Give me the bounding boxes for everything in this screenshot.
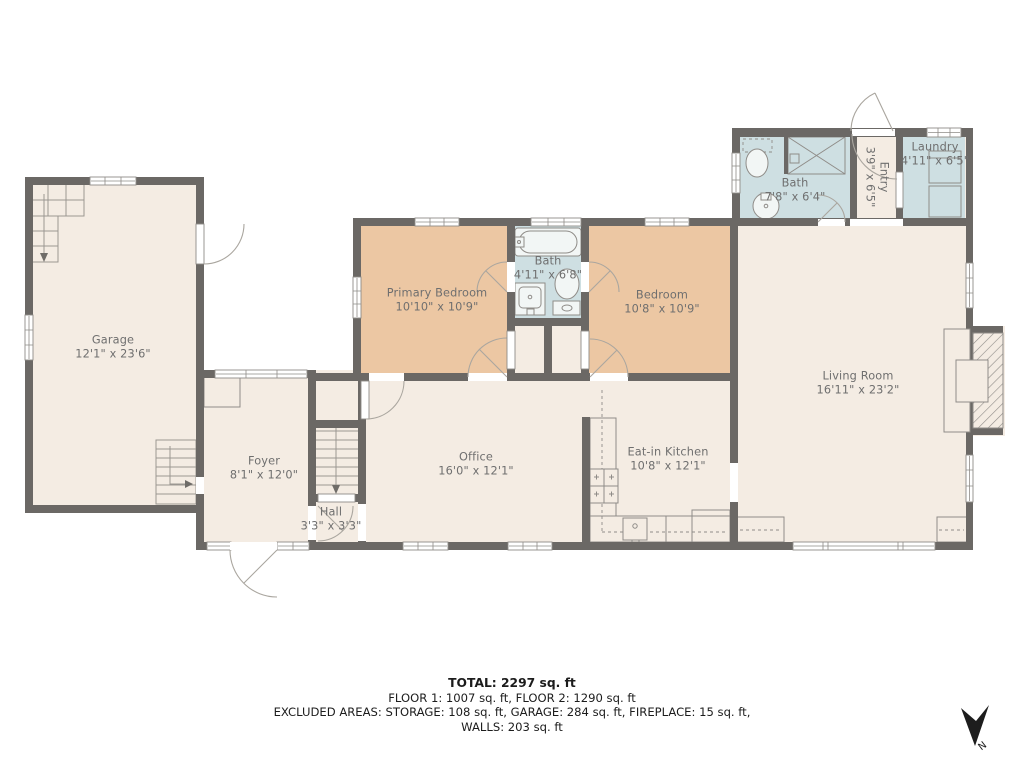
- window: [966, 455, 973, 502]
- room-name: Hall: [301, 506, 362, 520]
- room-name: Foyer: [230, 455, 298, 469]
- office-door-leaf: [361, 381, 369, 419]
- fireplace-firebox: [956, 360, 988, 402]
- room-label-kitchen: Eat-in Kitchen 10'8" x 12'1": [627, 446, 708, 473]
- closet-left-door-leaf: [507, 331, 515, 369]
- room-label-entry: Entry 3'9" x 6'5": [864, 147, 891, 208]
- room-dims: 16'11" x 23'2": [817, 383, 900, 397]
- office-door-opening: [369, 373, 404, 381]
- room-dims: 3'3" x 3'3": [301, 519, 362, 533]
- bathtub-icon: [515, 228, 581, 256]
- room-dims: 3'9" x 6'5": [864, 147, 878, 208]
- garage-door-leaf: [196, 224, 204, 264]
- garage-door-swing: [204, 224, 244, 264]
- room-name: Primary Bedroom: [387, 287, 488, 301]
- garage-foyer-opening: [196, 477, 204, 494]
- foyer-door-opening: [230, 542, 277, 550]
- room-label-bedroom: Bedroom 10'8" x 10'9": [624, 289, 700, 316]
- summary-floors: FLOOR 1: 1007 sq. ft, FLOOR 2: 1290 sq. …: [0, 691, 1024, 706]
- window: [793, 542, 935, 550]
- area-summary: TOTAL: 2297 sq. ft FLOOR 1: 1007 sq. ft,…: [0, 676, 1024, 734]
- room-dims: 7'8" x 6'4": [765, 190, 826, 204]
- room-name: Living Room: [817, 370, 900, 384]
- room-name: Office: [438, 451, 514, 465]
- room-label-office: Office 16'0" x 12'1": [438, 451, 514, 478]
- summary-excluded-1: EXCLUDED AREAS: STORAGE: 108 sq. ft, GAR…: [0, 705, 1024, 720]
- summary-excluded-2: WALLS: 203 sq. ft: [0, 720, 1024, 735]
- front-entry-opening: [852, 129, 895, 136]
- window: [207, 542, 231, 550]
- room-dims: 10'8" x 10'9": [624, 302, 700, 316]
- summary-total: TOTAL: 2297 sq. ft: [0, 676, 1024, 691]
- floorplan-page: Garage 12'1" x 23'6" Foyer 8'1" x 12'0" …: [0, 0, 1024, 768]
- foyer-door-swing: [230, 550, 277, 597]
- window: [645, 218, 689, 226]
- room-name: Bath: [514, 255, 582, 269]
- window: [927, 128, 961, 137]
- primary-door-opening: [468, 373, 507, 381]
- room-dims: 16'0" x 12'1": [438, 464, 514, 478]
- window: [215, 370, 307, 378]
- room-label-bath-main: Bath 4'11" x 6'8": [514, 255, 582, 282]
- fireplace: [944, 329, 1003, 432]
- room-label-bath-upper: Bath 7'8" x 6'4": [765, 177, 826, 204]
- room-name: Garage: [75, 334, 151, 348]
- room-label-hall: Hall 3'3" x 3'3": [301, 506, 362, 533]
- room-dims: 10'10" x 10'9": [387, 300, 488, 314]
- front-entry-swing-out: [851, 93, 893, 131]
- room-dims: 4'11" x 6'8": [514, 268, 582, 282]
- room-label-garage: Garage 12'1" x 23'6": [75, 334, 151, 361]
- room-name: Eat-in Kitchen: [627, 446, 708, 460]
- window: [90, 177, 136, 185]
- bath-upper-door-opening: [818, 219, 845, 226]
- room-label-living-room: Living Room 16'11" x 23'2": [817, 370, 900, 397]
- room-dims: 12'1" x 23'6": [75, 347, 151, 361]
- kitchen-living-opening: [730, 463, 738, 502]
- room-dims: 8'1" x 12'0": [230, 468, 298, 482]
- entry-laundry-door-leaf: [896, 172, 903, 208]
- room-dims: 10'8" x 12'1": [627, 459, 708, 473]
- window: [25, 315, 33, 360]
- entry-living-opening: [850, 219, 903, 226]
- room-label-primary-bedroom: Primary Bedroom 10'10" x 10'9": [387, 287, 488, 314]
- window: [415, 218, 459, 226]
- room-dims: 4'11" x 6'5": [901, 154, 969, 168]
- bath-door-right-opening: [581, 262, 589, 292]
- window: [277, 542, 309, 550]
- window: [403, 542, 448, 550]
- room-name: Bedroom: [624, 289, 700, 303]
- stove-icon: [590, 469, 618, 503]
- closet-right-door-leaf: [581, 331, 589, 369]
- sink-icon: [515, 283, 545, 315]
- room-name: Laundry: [901, 141, 969, 155]
- room-name: Bath: [765, 177, 826, 191]
- window: [531, 218, 581, 226]
- room-label-laundry: Laundry 4'11" x 6'5": [901, 141, 969, 168]
- window: [508, 542, 552, 550]
- understairs-door-leaf: [318, 494, 355, 502]
- window: [732, 153, 740, 193]
- room-label-foyer: Foyer 8'1" x 12'0": [230, 455, 298, 482]
- window: [353, 277, 361, 318]
- bedroom-door-opening: [590, 373, 628, 381]
- window: [966, 263, 973, 308]
- room-name: Entry: [877, 147, 891, 208]
